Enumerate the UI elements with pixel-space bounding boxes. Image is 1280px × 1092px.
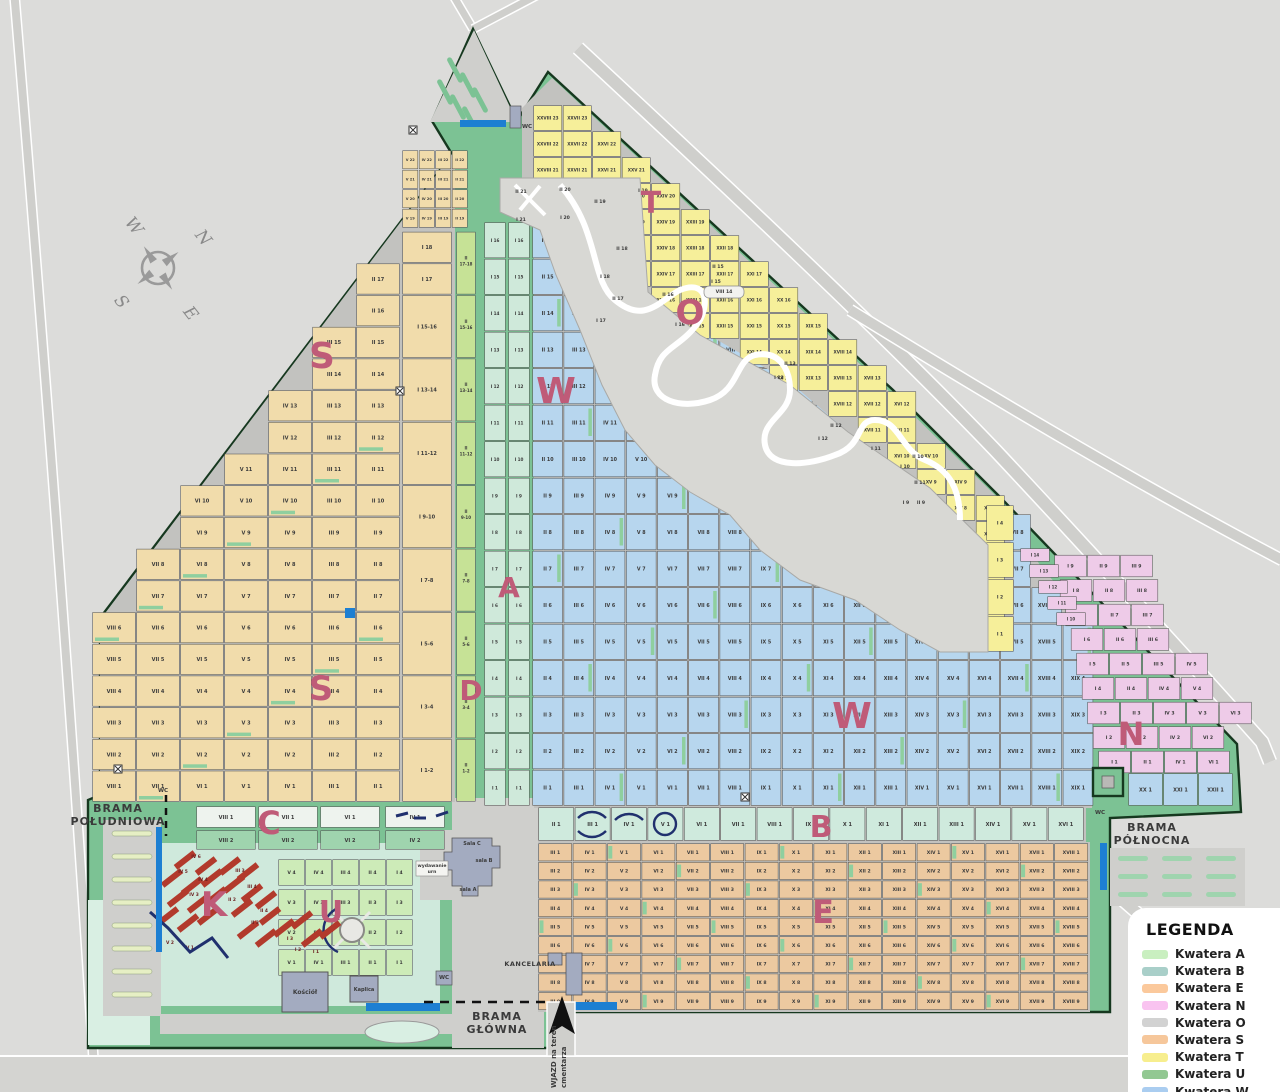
plot-label: II bbox=[465, 763, 468, 768]
plot-label: V 20 bbox=[406, 197, 416, 201]
parking-strip bbox=[1118, 892, 1148, 897]
plot-label: V 1 bbox=[241, 784, 251, 790]
plot-label: 1-2 bbox=[462, 769, 469, 774]
plot-label: XIV 4 bbox=[927, 906, 941, 912]
plot-label: IV 2 bbox=[410, 838, 421, 844]
plot-label: I 15-16 bbox=[417, 324, 437, 330]
plot-label: XV 7 bbox=[962, 962, 974, 968]
plot-label: XXI 1 bbox=[1173, 787, 1188, 793]
plot-label: VII 8 bbox=[152, 562, 165, 568]
plot-label: XVI 6 bbox=[996, 943, 1010, 949]
plot-label: XVII 13 bbox=[864, 376, 881, 381]
plot-label: VII 1 bbox=[697, 785, 709, 791]
plot-label: I 3 bbox=[516, 712, 522, 717]
plot-label: VII 7 bbox=[697, 566, 709, 572]
parking-strip bbox=[1206, 874, 1236, 879]
plot-label: II 11 bbox=[542, 420, 554, 426]
plot-label: III 8 bbox=[550, 980, 560, 986]
plot-label: XI 7 bbox=[825, 962, 835, 968]
plot-label: VIII 1 bbox=[219, 815, 234, 821]
hedge bbox=[952, 846, 956, 859]
plot-label: XI 1 bbox=[825, 850, 835, 856]
plot-label: XII 4 bbox=[853, 676, 866, 682]
parking-strip bbox=[1162, 892, 1192, 897]
plot-label: IX 6 bbox=[757, 943, 767, 949]
plot-label: X 1 bbox=[843, 822, 853, 828]
plot-label: I 18 bbox=[600, 274, 610, 280]
plot-label: XII 7 bbox=[859, 962, 871, 968]
plot-label: XI 8 bbox=[825, 980, 835, 986]
legend-item-label: Kwatera A bbox=[1175, 947, 1245, 961]
parking-strip bbox=[1162, 874, 1192, 879]
plot-label: XIV 8 bbox=[927, 980, 941, 986]
plot-label: II bbox=[465, 319, 468, 324]
plot-label: V 2 bbox=[241, 752, 251, 758]
plot-label: VI 1 bbox=[696, 822, 707, 828]
plot-label: I 13 bbox=[1040, 568, 1049, 573]
hedge bbox=[608, 939, 612, 952]
plot-label: XIII 9 bbox=[892, 999, 905, 1005]
plot-label: I 17 bbox=[422, 277, 433, 283]
plot-label: I 10 bbox=[1067, 616, 1076, 621]
plot-label: XXVI 22 bbox=[597, 142, 616, 147]
plot-label: I 9 bbox=[516, 493, 522, 498]
plot-label: IX 8 bbox=[757, 980, 767, 986]
plot-label: IV 10 bbox=[283, 499, 298, 505]
wc-label: WC bbox=[522, 124, 532, 130]
plot-label: VI 1 bbox=[667, 785, 678, 791]
main-gate-label: GŁÓWNA bbox=[467, 1023, 528, 1036]
plot-label: VII 2 bbox=[697, 749, 709, 755]
plot-label: I 11 bbox=[871, 446, 881, 452]
quarter-letter-s-lower: S bbox=[309, 669, 334, 709]
quarter-letter-t: T bbox=[641, 186, 662, 221]
plot-label: XIII 2 bbox=[884, 749, 898, 755]
legend-item: Kwatera B bbox=[1142, 964, 1280, 978]
plot-label: VI 8 bbox=[653, 980, 663, 986]
hedge bbox=[963, 701, 967, 729]
plot-label: II 4 bbox=[260, 908, 268, 914]
plot-label: IV 5 bbox=[605, 639, 616, 645]
parking-strip bbox=[112, 831, 152, 836]
plot-label: X 6 bbox=[792, 943, 800, 949]
office-label: KANCELARIA bbox=[504, 960, 555, 968]
water-strip bbox=[156, 827, 162, 952]
plot-label: I 5 bbox=[516, 639, 522, 644]
plot-label: IX 2 bbox=[761, 749, 772, 755]
plot-label: IV 1 bbox=[585, 850, 595, 856]
hedge bbox=[643, 902, 647, 915]
plot-label: XXIII 18 bbox=[686, 246, 705, 251]
plot-label: XVIII 3 bbox=[1063, 887, 1080, 893]
north-gate-label: BRAMA bbox=[1127, 821, 1177, 834]
south-road-band bbox=[0, 1056, 1280, 1092]
hedge bbox=[227, 542, 251, 546]
plot-label: 17-18 bbox=[460, 261, 473, 266]
hedge bbox=[987, 902, 991, 915]
plot-label: XIV 3 bbox=[927, 887, 941, 893]
plot-label: IV 6 bbox=[605, 603, 616, 609]
plot-label: XVI 2 bbox=[977, 749, 991, 755]
plot-label: III 2 bbox=[574, 749, 584, 755]
plot-label: II 4 bbox=[368, 870, 376, 876]
plot-label: V 19 bbox=[406, 217, 416, 221]
plot-label: V 4 bbox=[241, 689, 251, 695]
plot-label: IX 7 bbox=[757, 962, 767, 968]
plot-label: II 3 bbox=[251, 920, 259, 926]
plot-label: I 6 bbox=[492, 603, 498, 608]
plot-label: I 4 bbox=[997, 521, 1003, 527]
plot-label: II 22 bbox=[455, 158, 464, 162]
hedge bbox=[139, 796, 163, 800]
plot-label: VIII 6 bbox=[728, 603, 743, 609]
plot-label: VI 3 bbox=[1230, 711, 1240, 717]
plot-label: XVII 12 bbox=[864, 402, 881, 407]
south-parking bbox=[103, 820, 161, 1016]
entry-label: WJAZD na teren bbox=[550, 1025, 558, 1088]
plot-label: III 6 bbox=[574, 603, 585, 609]
plot-label: XVIII 7 bbox=[1063, 962, 1080, 968]
plot-label: IV 3 bbox=[1164, 711, 1174, 717]
plot-label: XIV 2 bbox=[927, 869, 941, 875]
plot-label: XI 2 bbox=[823, 749, 834, 755]
plot-label: XIV 9 bbox=[955, 480, 967, 485]
plot-label: IV 7 bbox=[285, 594, 296, 600]
plot-label: VIII 2 bbox=[720, 869, 733, 875]
wc-label: WC bbox=[439, 975, 449, 981]
plot-label: VIII 3 bbox=[107, 721, 122, 727]
plot-label: I 4 bbox=[396, 870, 403, 876]
plot-label: XVIII 1 bbox=[1063, 850, 1080, 856]
plot-label: V 6 bbox=[241, 625, 251, 631]
plot-label: II 13 bbox=[784, 361, 795, 367]
plot-label: II 10 bbox=[372, 499, 385, 505]
plot-label: IV 4 bbox=[285, 689, 296, 695]
plot-label: I 16 bbox=[515, 238, 524, 243]
plot-label: XVI 5 bbox=[996, 924, 1010, 930]
plot-label: IV 3 bbox=[285, 721, 296, 727]
plot-label: III 13 bbox=[572, 347, 586, 353]
plot-label: III 3 bbox=[329, 721, 340, 727]
plot-label: VI 1 bbox=[197, 784, 208, 790]
plot-label: VII 1 bbox=[282, 815, 295, 821]
plot-label: XIV 1 bbox=[986, 822, 1001, 828]
plot-label: II 7 bbox=[543, 566, 552, 572]
plot-label: XVII 8 bbox=[1029, 980, 1044, 986]
plot-label: III 12 bbox=[327, 435, 342, 441]
plot-label: XVII 2 bbox=[1029, 869, 1044, 875]
plot-label: VII 3 bbox=[697, 712, 709, 718]
quarter-letter-s-upper: S bbox=[309, 336, 335, 377]
plot-label: V 1 bbox=[661, 822, 671, 828]
legend-item: Kwatera S bbox=[1142, 1033, 1280, 1047]
plot-label: XV 3 bbox=[962, 887, 974, 893]
quarter-letter-k: K bbox=[201, 885, 229, 925]
plot-label: IV 4 bbox=[1159, 686, 1169, 692]
plot-label: VI 2 bbox=[345, 838, 356, 844]
plot-label: I 1 bbox=[492, 785, 498, 790]
plot-label: II 14 bbox=[542, 311, 555, 317]
quarter-letter-e: E bbox=[812, 893, 834, 931]
plot-label: IX 5 bbox=[761, 639, 772, 645]
plot-label: V 3 bbox=[1198, 711, 1206, 717]
plot-label: II 21 bbox=[455, 178, 464, 182]
plot-label: XVI 2 bbox=[996, 869, 1010, 875]
plot-label: I 3 bbox=[997, 558, 1003, 564]
plot-label: I 12 bbox=[818, 436, 828, 442]
legend-item-label: Kwatera E bbox=[1175, 981, 1244, 995]
hedge bbox=[227, 733, 251, 737]
plot-label: VIII 2 bbox=[219, 838, 234, 844]
plot-label: XXI 15 bbox=[747, 324, 762, 329]
plot-label: III 1 bbox=[550, 850, 560, 856]
plot-label: VII 3 bbox=[152, 721, 165, 727]
plot-label: XIII 8 bbox=[892, 980, 905, 986]
plot-label: XIV 7 bbox=[927, 962, 941, 968]
plot-label: I 15 bbox=[711, 279, 721, 285]
legend-swatch bbox=[1142, 1087, 1168, 1092]
plot-label: V 3 bbox=[637, 712, 646, 718]
plot-label: XIII 3 bbox=[892, 887, 905, 893]
plot-label: XXV 21 bbox=[628, 168, 645, 173]
plot-label: III 9 bbox=[329, 530, 340, 536]
plot-label: V 9 bbox=[620, 999, 628, 1005]
plot-label: VI 9 bbox=[653, 999, 663, 1005]
plot-label: XV 3 bbox=[947, 712, 959, 718]
plot-label: XV 2 bbox=[947, 749, 959, 755]
plot-label: XII 2 bbox=[853, 749, 865, 755]
plot-label: VIII 9 bbox=[720, 999, 733, 1005]
hedge bbox=[849, 865, 853, 878]
plot-label: X 3 bbox=[793, 712, 802, 718]
plot-label: II 18 bbox=[616, 246, 627, 252]
plot-label: XII 1 bbox=[914, 822, 927, 828]
plot-label: VII 6 bbox=[697, 603, 710, 609]
plot-label: IV 19 bbox=[422, 217, 433, 221]
quarter-letter-w-upper: W bbox=[536, 371, 576, 412]
hedge bbox=[952, 939, 956, 952]
cemetery-map-page: II 1II 2II 3II 4II 5II 6II 7II 8II 9II 1… bbox=[0, 0, 1280, 1092]
plot-label: XXVIII 22 bbox=[537, 142, 559, 147]
plot-label: III 5 bbox=[329, 657, 340, 663]
plot-label: XI 9 bbox=[825, 999, 835, 1005]
hedge bbox=[1025, 664, 1029, 692]
plot-label: IV 5 bbox=[1186, 662, 1196, 668]
plot-label: VIII 2 bbox=[107, 752, 122, 758]
legend-swatch bbox=[1142, 1053, 1168, 1062]
plot-label: 7-8 bbox=[462, 578, 469, 583]
plot-label: I 13 bbox=[515, 347, 524, 352]
plot-label: II 19 bbox=[594, 199, 605, 205]
legend-title: LEGENDA bbox=[1146, 920, 1280, 939]
legend-swatch bbox=[1142, 1035, 1168, 1044]
plot-label: VIII 1 bbox=[767, 822, 782, 828]
plot-label: II 1 bbox=[374, 784, 383, 790]
plot-label: I 10 bbox=[515, 457, 524, 462]
plot-label: XXVII 22 bbox=[567, 142, 587, 147]
plot-label: 5-6 bbox=[462, 642, 469, 647]
plot-label: IX 3 bbox=[761, 712, 772, 718]
plot-label: I 2 bbox=[1106, 735, 1113, 741]
plot-label: XXVIII 23 bbox=[537, 116, 559, 121]
plot-label: I 9-10 bbox=[419, 515, 436, 521]
hedge bbox=[677, 865, 681, 878]
plot-label: IX 1 bbox=[761, 785, 772, 791]
plot-label: III 9 bbox=[1132, 564, 1142, 570]
plot-label: I 3 bbox=[287, 936, 293, 942]
quarter-letter-u: U bbox=[319, 895, 343, 930]
plot-label: I 10 bbox=[900, 464, 910, 470]
plot-label: XXIII 17 bbox=[686, 272, 705, 277]
plot-label: IV 7 bbox=[585, 962, 595, 968]
plot-label: I 13 bbox=[491, 347, 500, 352]
plot-label: II 1 bbox=[368, 960, 376, 966]
plot-label: IX 3 bbox=[757, 887, 767, 893]
office-building bbox=[566, 953, 582, 995]
plot-label: I 4 bbox=[492, 676, 498, 681]
plot-label: VI 2 bbox=[653, 869, 663, 875]
plot-label: II 5 bbox=[543, 639, 552, 645]
plot-label: V 2 bbox=[620, 869, 628, 875]
plot-label: I 17 bbox=[596, 318, 606, 324]
plot-label: V 1 bbox=[620, 850, 628, 856]
plot-label: XVII 4 bbox=[1029, 906, 1044, 912]
plot-label: V 9 bbox=[241, 530, 251, 536]
plot-label: II 14 bbox=[372, 372, 385, 378]
plot-label: XIII 5 bbox=[884, 639, 898, 645]
plot-label: VI 2 bbox=[667, 749, 678, 755]
plot-label: IV 8 bbox=[585, 980, 595, 986]
plot-label: IX 7 bbox=[761, 566, 772, 572]
plot-label: IV 1 bbox=[624, 822, 635, 828]
plot-label: V 4 bbox=[620, 906, 628, 912]
plot-label: XI 6 bbox=[825, 943, 835, 949]
plot-label: II 21 bbox=[515, 189, 526, 195]
plot-label: XVI 1 bbox=[977, 785, 991, 791]
plot-label: XXIV 18 bbox=[656, 246, 675, 251]
plot-label: VIII 4 bbox=[720, 906, 733, 912]
plot-label: V 4 bbox=[287, 870, 295, 876]
plot-label: VI 2 bbox=[1203, 735, 1213, 741]
plot-label: VIII 5 bbox=[720, 924, 733, 930]
plot-label: I 21 bbox=[516, 217, 526, 223]
plot-label: VII 8 bbox=[687, 980, 699, 986]
legend-item: Kwatera U bbox=[1142, 1067, 1280, 1081]
plot-label: VIII 6 bbox=[107, 625, 122, 631]
plot-label: XI 1 bbox=[823, 785, 834, 791]
plot-label: X 9 bbox=[792, 999, 800, 1005]
plot-label: IX 5 bbox=[757, 924, 767, 930]
plot-label: I 1 bbox=[396, 960, 403, 966]
hedge bbox=[918, 883, 922, 896]
hedge bbox=[869, 628, 873, 656]
plot-label: XVIII 8 bbox=[1063, 980, 1080, 986]
plot-label: XVII 6 bbox=[1029, 943, 1044, 949]
plot-label: VIII 1 bbox=[720, 850, 733, 856]
plot-label: XIV 2 bbox=[915, 749, 929, 755]
plot-label: XXII 1 bbox=[1207, 787, 1224, 793]
hedge bbox=[588, 409, 592, 437]
hedge bbox=[1056, 774, 1060, 802]
plot-label: II bbox=[465, 255, 468, 260]
north-gate-label: PÓŁNOCNA bbox=[1114, 834, 1191, 847]
plot-label: IV 6 bbox=[191, 854, 201, 860]
plot-label: III 5 bbox=[574, 639, 584, 645]
plot-label: III 1 bbox=[329, 784, 340, 790]
plot-label: II 4 bbox=[1127, 686, 1135, 692]
plot-label: III 6 bbox=[550, 943, 560, 949]
legend-swatch bbox=[1142, 1070, 1168, 1079]
plot-label: XVI 9 bbox=[996, 999, 1010, 1005]
plot-label: V 5 bbox=[241, 657, 251, 663]
plot-label: XX 14 bbox=[777, 350, 791, 355]
plot-label: VII 4 bbox=[687, 906, 699, 912]
plot-label: V 21 bbox=[406, 178, 416, 182]
plot-label: X 4 bbox=[793, 676, 802, 682]
plot-label: VI 5 bbox=[653, 924, 663, 930]
plot-label: XVIII 9 bbox=[1063, 999, 1080, 1005]
plot-label: XIV 5 bbox=[927, 924, 941, 930]
plot-label: IV 2 bbox=[605, 749, 616, 755]
plot-label: VI 1 bbox=[1208, 760, 1218, 766]
hedge bbox=[744, 701, 748, 729]
plot-label: III 22 bbox=[438, 158, 449, 162]
plot-label: VIII 4 bbox=[107, 689, 122, 695]
plot-label: II 4 bbox=[374, 689, 383, 695]
plot-label: IV 4 bbox=[605, 676, 616, 682]
plot-label: XII 9 bbox=[859, 999, 871, 1005]
hedge bbox=[608, 846, 612, 859]
plot-label: III 3 bbox=[550, 887, 560, 893]
plot-label: III 21 bbox=[438, 178, 449, 182]
hedge bbox=[1056, 920, 1060, 933]
plot-label: II bbox=[465, 509, 468, 514]
hedge bbox=[315, 479, 339, 483]
hedge bbox=[540, 920, 544, 933]
plot-label: VII 9 bbox=[687, 999, 699, 1005]
plot-label: XXVII 21 bbox=[567, 168, 587, 173]
hedge bbox=[271, 701, 295, 705]
plot-label: III 2 bbox=[329, 752, 340, 758]
plot-label: XVIII 5 bbox=[1038, 639, 1056, 645]
plot-label: XII 1 bbox=[853, 785, 865, 791]
plot-label: XVI 8 bbox=[996, 980, 1010, 986]
plot-label: II 13 bbox=[372, 404, 385, 410]
plot-label: VI 2 bbox=[197, 752, 208, 758]
plot-label: VI 4 bbox=[667, 676, 678, 682]
plot-label: XXVIII 21 bbox=[537, 168, 559, 173]
hedge bbox=[713, 591, 717, 619]
plot-label: V 7 bbox=[620, 962, 628, 968]
plot-label: I 9 bbox=[1067, 564, 1074, 570]
plot-label: I 14 bbox=[515, 311, 524, 316]
plot-label: XV 2 bbox=[962, 869, 974, 875]
plot-label: I 3-4 bbox=[421, 705, 434, 711]
plot-label: VI 6 bbox=[197, 625, 208, 631]
plot-label: XVIII 3 bbox=[1038, 712, 1056, 718]
plot-label: I 1-2 bbox=[421, 768, 434, 774]
plot-label: I 4 bbox=[516, 676, 522, 681]
plot-label: IX 2 bbox=[757, 869, 767, 875]
plot-label: III 7 bbox=[574, 566, 584, 572]
plot-label: V 1 bbox=[637, 785, 646, 791]
plot-label: XVI 12 bbox=[894, 402, 909, 407]
plot-label: V 7 bbox=[241, 594, 251, 600]
monument bbox=[1102, 776, 1114, 788]
plot-label: 15-16 bbox=[460, 325, 473, 330]
plot-label: V 3 bbox=[241, 721, 251, 727]
hedge bbox=[884, 920, 888, 933]
